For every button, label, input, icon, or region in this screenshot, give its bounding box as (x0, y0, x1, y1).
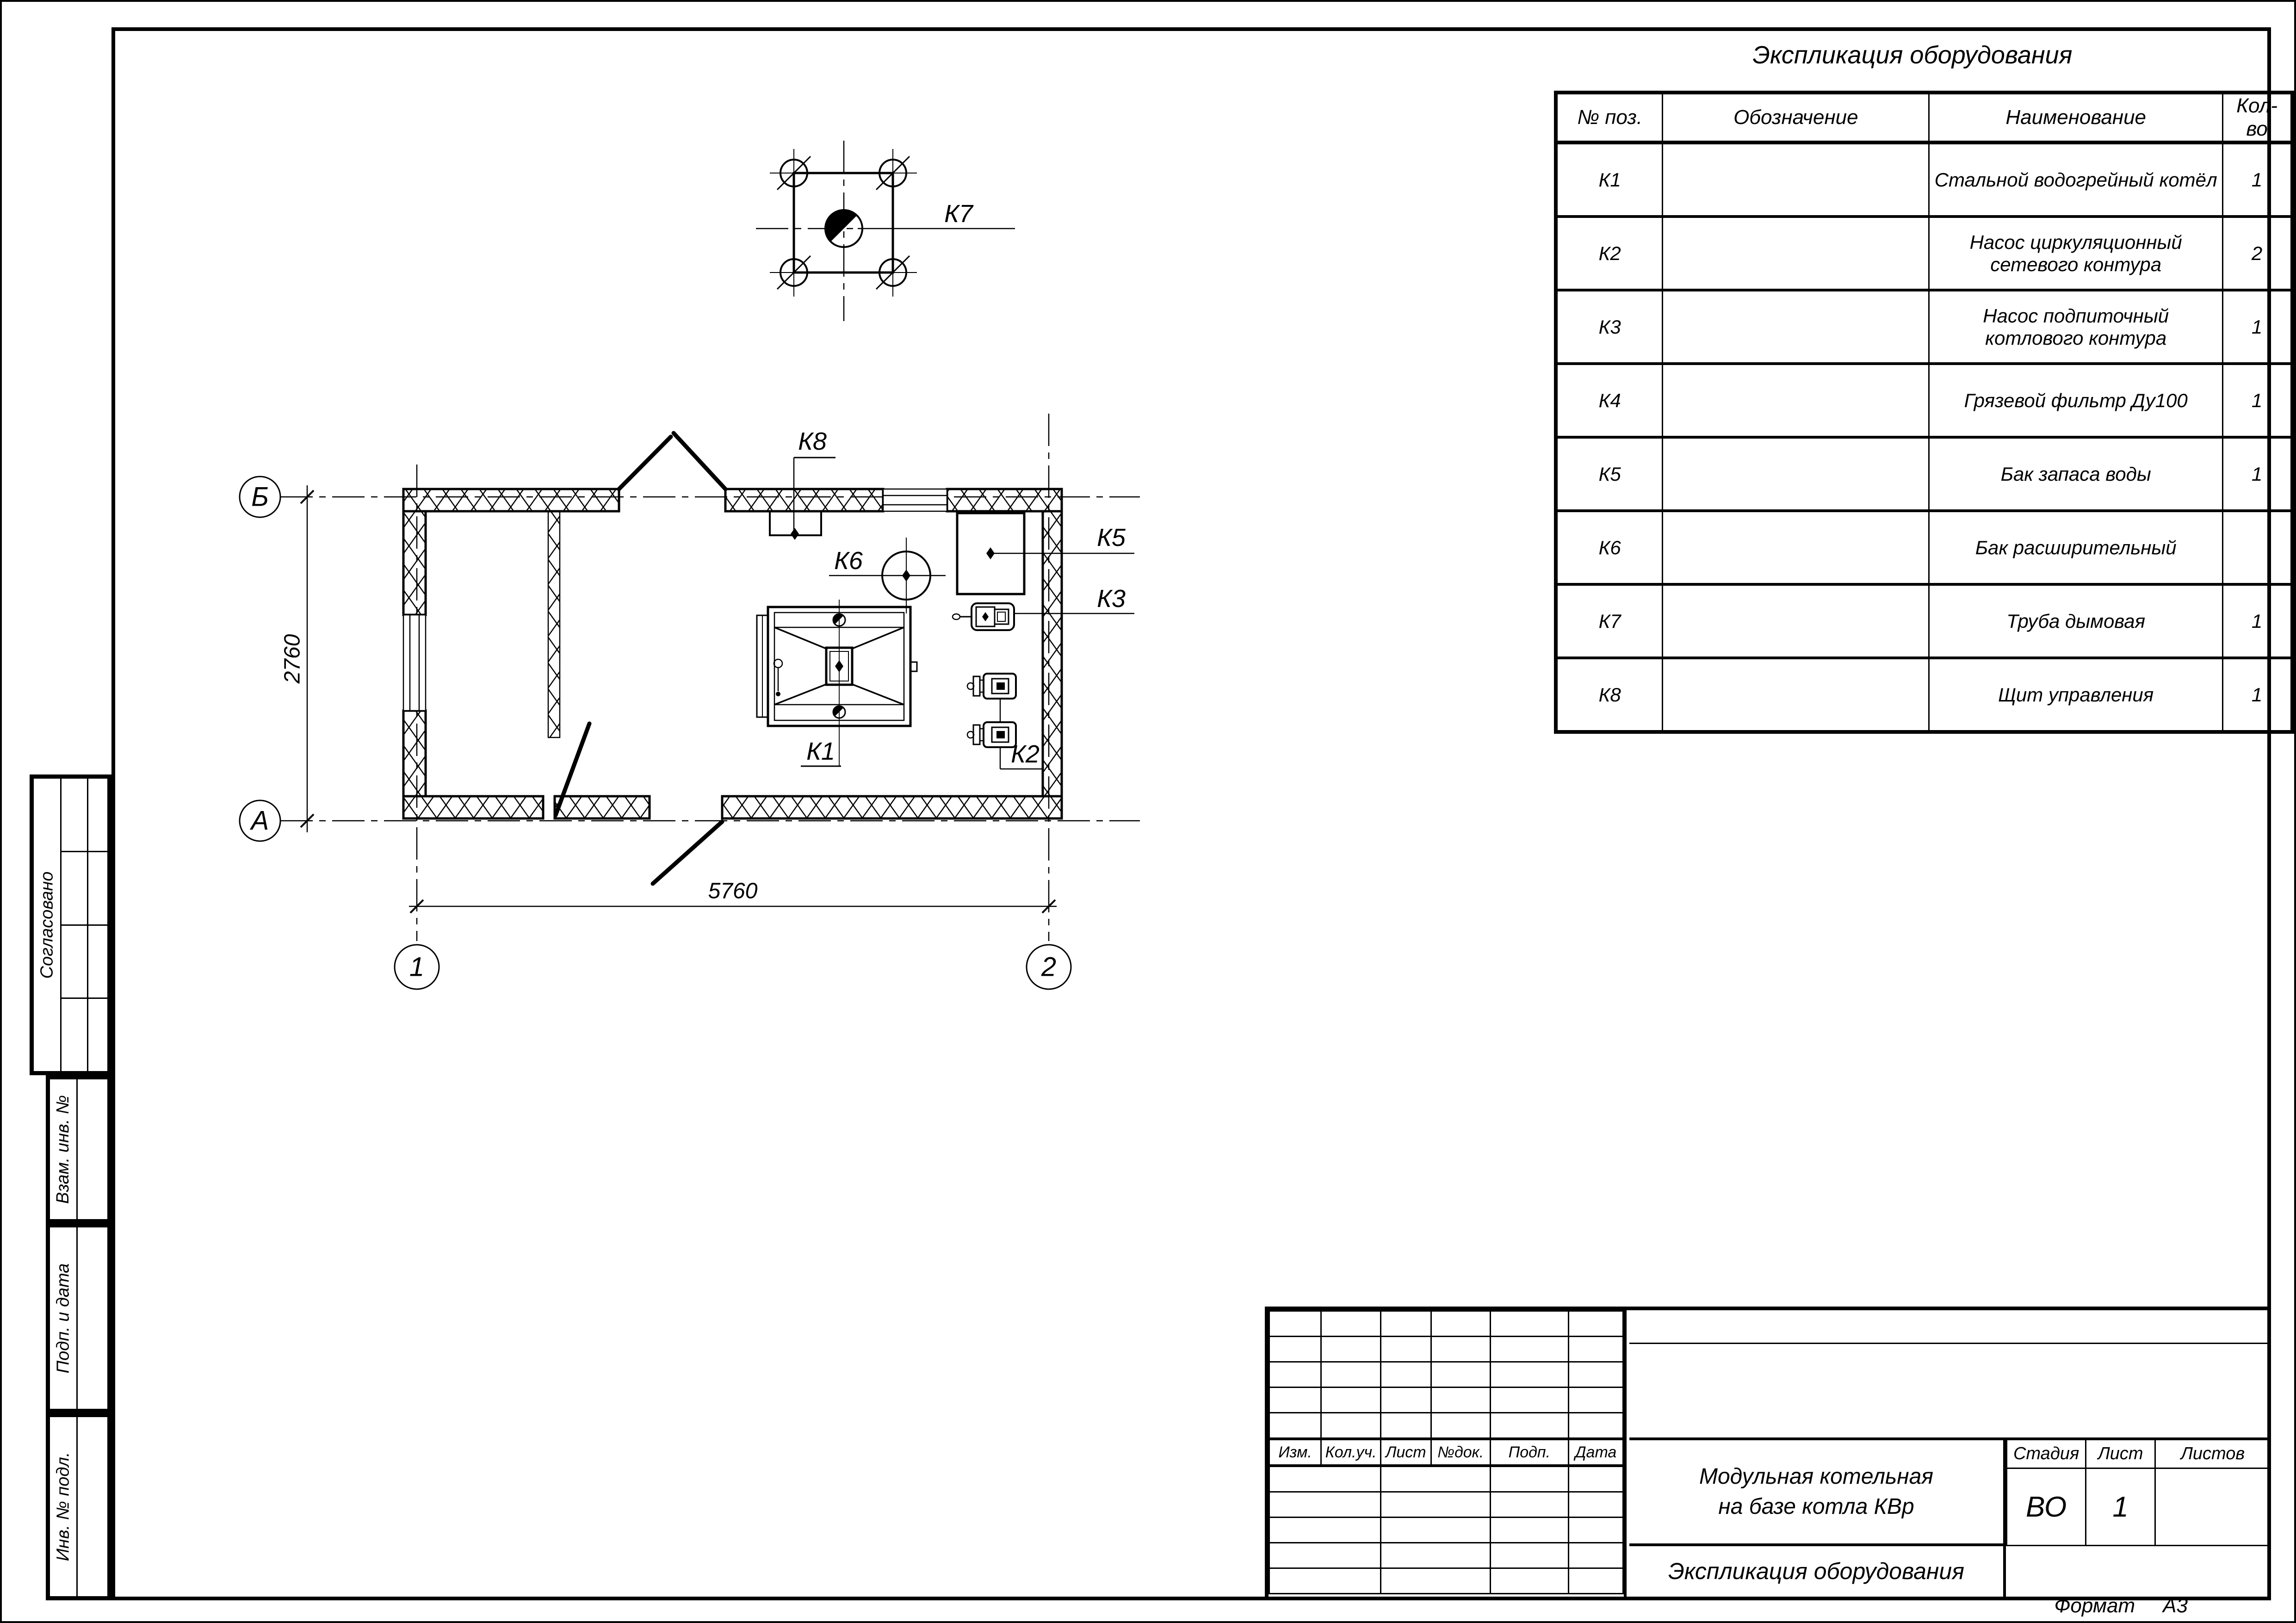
cell-name: Бак расширительный (1929, 511, 2223, 584)
equipment-row: К2 Насос циркуляционный сетевого контура… (1556, 217, 2292, 290)
cell-qty: 1 (2223, 437, 2292, 511)
equipment-table-title: Экспликация оборудования (1554, 39, 2271, 71)
cell-qty: 2 (2223, 217, 2292, 290)
sheet-label: Лист (2086, 1439, 2155, 1468)
label-k2: К2 (1011, 740, 1040, 768)
axis-label-1: 1 (409, 952, 424, 983)
project-title-line1: Модульная котельная (1629, 1462, 2003, 1492)
rev-col-ndok: №док. (1431, 1439, 1490, 1466)
cell-qty (2223, 511, 2292, 584)
stamp-inv-podl: Инв. № подл. (46, 1413, 111, 1600)
floor-plan-drawing (233, 118, 1182, 1020)
axis-label-a: А (251, 805, 269, 836)
cell-name: Насос подпиточный котлового контура (1929, 290, 2223, 364)
label-k5: К5 (1097, 523, 1126, 552)
label-k3: К3 (1097, 584, 1126, 613)
project-title-cell: Модульная котельная на базе котла КВр (1629, 1437, 2006, 1546)
cell-qty: 1 (2223, 290, 2292, 364)
doc-code-divider (1629, 1343, 2271, 1344)
cell-designation (1663, 658, 1929, 732)
cell-designation (1663, 511, 1929, 584)
title-block-right: Модульная котельная на базе котла КВр Ст… (1629, 1310, 2271, 1597)
label-k6: К6 (834, 546, 863, 575)
stage-value: ВО (2007, 1468, 2086, 1546)
revision-table: Изм. Кол.уч. Лист №док. Подп. Дата (1269, 1310, 1627, 1597)
walls (403, 489, 1062, 818)
cell-position: К2 (1556, 217, 1663, 290)
cell-designation (1663, 437, 1929, 511)
stage-table: Стадия Лист Листов ВО 1 (2006, 1437, 2271, 1546)
rev-col-data: Дата (1568, 1439, 1623, 1466)
partition-wall (548, 511, 560, 737)
equipment-row: К5 Бак запаса воды 1 (1556, 437, 2292, 511)
rev-col-izm: Изм. (1269, 1439, 1321, 1466)
cell-name: Бак запаса воды (1929, 437, 2223, 511)
equipment-row: К6 Бак расширительный (1556, 511, 2292, 584)
cell-designation (1663, 290, 1929, 364)
cell-qty: 1 (2223, 364, 2292, 437)
cell-designation (1663, 584, 1929, 658)
format-note: ФорматА3 (2026, 1594, 2188, 1617)
format-label: Формат (2054, 1594, 2135, 1617)
cell-name: Труба дымовая (1929, 584, 2223, 658)
cell-position: К1 (1556, 142, 1663, 217)
cell-position: К3 (1556, 290, 1663, 364)
cell-position: К6 (1556, 511, 1663, 584)
label-k8: К8 (798, 427, 827, 456)
stamp-podp-data-label: Подп. и дата (53, 1263, 73, 1373)
stamp-vzam-inv: Взам. инв. № (46, 1075, 111, 1223)
format-value: А3 (2163, 1594, 2188, 1617)
equipment-table: № поз. Обозначение Наименование Кол-во К… (1554, 91, 2294, 734)
cell-name: Стальной водогрейный котёл (1929, 142, 2223, 217)
equipment-table-header: № поз. Обозначение Наименование Кол-во (1556, 93, 2292, 142)
dimension-width: 5760 (708, 879, 758, 904)
axis-label-b: Б (251, 482, 269, 513)
stamp-agreed-label: Согласовано (37, 871, 57, 979)
cell-designation (1663, 142, 1929, 217)
dimension-height: 2760 (280, 634, 305, 684)
label-k1: К1 (806, 737, 835, 766)
cell-qty: 1 (2223, 584, 2292, 658)
boiler-k1-symbol (757, 600, 917, 766)
cell-name: Грязевой фильтр Ду100 (1929, 364, 2223, 437)
equipment-row: К8 Щит управления 1 (1556, 658, 2292, 732)
chimney-k7-symbol (770, 149, 1015, 297)
cell-qty: 1 (2223, 658, 2292, 732)
equipment-row: К1 Стальной водогрейный котёл 1 (1556, 142, 2292, 217)
drawing-sheet: К1 К2 К3 К5 К6 К7 К8 Б А 1 2 2760 5760 Э… (0, 0, 2296, 1623)
rev-col-list: Лист (1381, 1439, 1431, 1466)
cell-position: К7 (1556, 584, 1663, 658)
cell-position: К4 (1556, 364, 1663, 437)
sheet-title-cell: Экспликация оборудования (1629, 1545, 2006, 1597)
project-title-line2: на базе котла КВр (1629, 1492, 2003, 1522)
col-designation: Обозначение (1663, 93, 1929, 142)
cell-position: К8 (1556, 658, 1663, 732)
stamp-agreed: Согласовано (30, 774, 111, 1075)
windows (403, 489, 947, 711)
axis-label-2: 2 (1041, 952, 1056, 983)
cell-qty: 1 (2223, 142, 2292, 217)
equipment-row: К3 Насос подпиточный котлового контура 1 (1556, 290, 2292, 364)
col-position: № поз. (1556, 93, 1663, 142)
cell-name: Щит управления (1929, 658, 2223, 732)
cell-designation (1663, 364, 1929, 437)
col-qty: Кол-во (2223, 93, 2292, 142)
sheet-value: 1 (2086, 1468, 2155, 1546)
stamp-podp-data: Подп. и дата (46, 1223, 111, 1413)
stamp-inv-podl-label: Инв. № подл. (53, 1452, 73, 1561)
stage-label: Стадия (2007, 1439, 2086, 1468)
col-name: Наименование (1929, 93, 2223, 142)
equipment-row: К7 Труба дымовая 1 (1556, 584, 2292, 658)
organization-cell (2006, 1545, 2271, 1597)
cell-name: Насос циркуляционный сетевого контура (1929, 217, 2223, 290)
axis-circles (240, 477, 1071, 989)
cell-designation (1663, 217, 1929, 290)
title-block: Изм. Кол.уч. Лист №док. Подп. Дата Модул… (1265, 1307, 2271, 1600)
rev-col-koluch: Кол.уч. (1321, 1439, 1381, 1466)
sheets-value (2155, 1468, 2271, 1546)
rev-col-podp: Подп. (1490, 1439, 1568, 1466)
sheets-label: Листов (2155, 1439, 2271, 1468)
equipment-row: К4 Грязевой фильтр Ду100 1 (1556, 364, 2292, 437)
cell-position: К5 (1556, 437, 1663, 511)
stamp-vzam-inv-label: Взам. инв. № (53, 1095, 73, 1203)
label-k7: К7 (944, 199, 973, 228)
